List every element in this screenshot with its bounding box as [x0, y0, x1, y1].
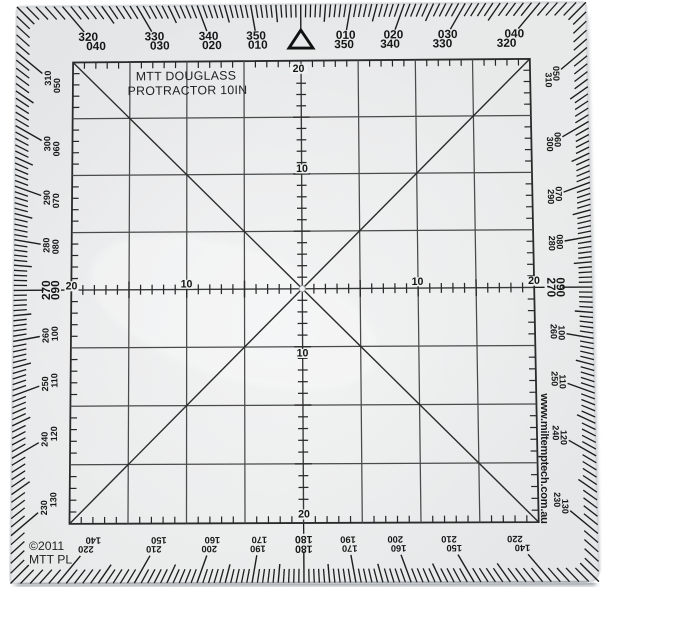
- svg-text:070: 070: [51, 193, 61, 208]
- svg-text:210: 210: [441, 534, 457, 544]
- svg-text:170: 170: [252, 535, 268, 545]
- svg-text:www.miltemptech.com.au: www.miltemptech.com.au: [538, 392, 550, 523]
- svg-text:330: 330: [432, 36, 452, 50]
- svg-text:©2011: ©2011: [29, 539, 64, 553]
- svg-text:280: 280: [547, 236, 557, 251]
- svg-text:PROTRACTOR 10IN: PROTRACTOR 10IN: [128, 83, 248, 98]
- svg-text:MTT PL: MTT PL: [29, 553, 72, 567]
- svg-text:250: 250: [550, 371, 560, 386]
- svg-text:350: 350: [334, 37, 354, 51]
- svg-text:240: 240: [551, 425, 561, 440]
- svg-text:110: 110: [49, 373, 59, 388]
- svg-text:10: 10: [181, 278, 193, 290]
- svg-text:040: 040: [86, 39, 106, 53]
- svg-text:050: 050: [52, 78, 62, 93]
- svg-text:020: 020: [202, 38, 222, 52]
- svg-text:010: 010: [248, 38, 268, 52]
- svg-text:190: 190: [340, 534, 356, 544]
- svg-text:220: 220: [507, 534, 523, 544]
- svg-text:100: 100: [50, 326, 60, 341]
- svg-text:320: 320: [497, 36, 517, 50]
- svg-text:080: 080: [51, 239, 61, 254]
- svg-text:230: 230: [552, 492, 562, 507]
- svg-text:160: 160: [205, 535, 221, 545]
- svg-text:MTT DOUGLASS: MTT DOUGLASS: [136, 68, 237, 83]
- svg-text:180: 180: [295, 533, 313, 545]
- svg-text:20: 20: [528, 275, 540, 287]
- svg-text:090: 090: [48, 280, 62, 300]
- svg-text:10: 10: [297, 348, 309, 360]
- svg-text:130: 130: [48, 492, 58, 507]
- svg-text:290: 290: [546, 189, 556, 204]
- svg-text:030: 030: [150, 38, 170, 52]
- svg-text:120: 120: [49, 426, 59, 441]
- svg-text:200: 200: [387, 534, 403, 544]
- svg-text:10: 10: [412, 276, 424, 288]
- svg-text:270: 270: [544, 277, 558, 297]
- svg-text:20: 20: [293, 63, 305, 75]
- svg-text:060: 060: [51, 141, 61, 156]
- svg-text:10: 10: [296, 163, 308, 175]
- svg-text:20: 20: [66, 280, 78, 292]
- svg-text:300: 300: [545, 137, 555, 152]
- svg-text:260: 260: [549, 324, 559, 339]
- svg-text:340: 340: [380, 37, 400, 51]
- svg-text:140: 140: [86, 535, 102, 545]
- svg-text:150: 150: [151, 535, 167, 545]
- svg-text:310: 310: [544, 72, 554, 87]
- svg-text:20: 20: [298, 509, 310, 521]
